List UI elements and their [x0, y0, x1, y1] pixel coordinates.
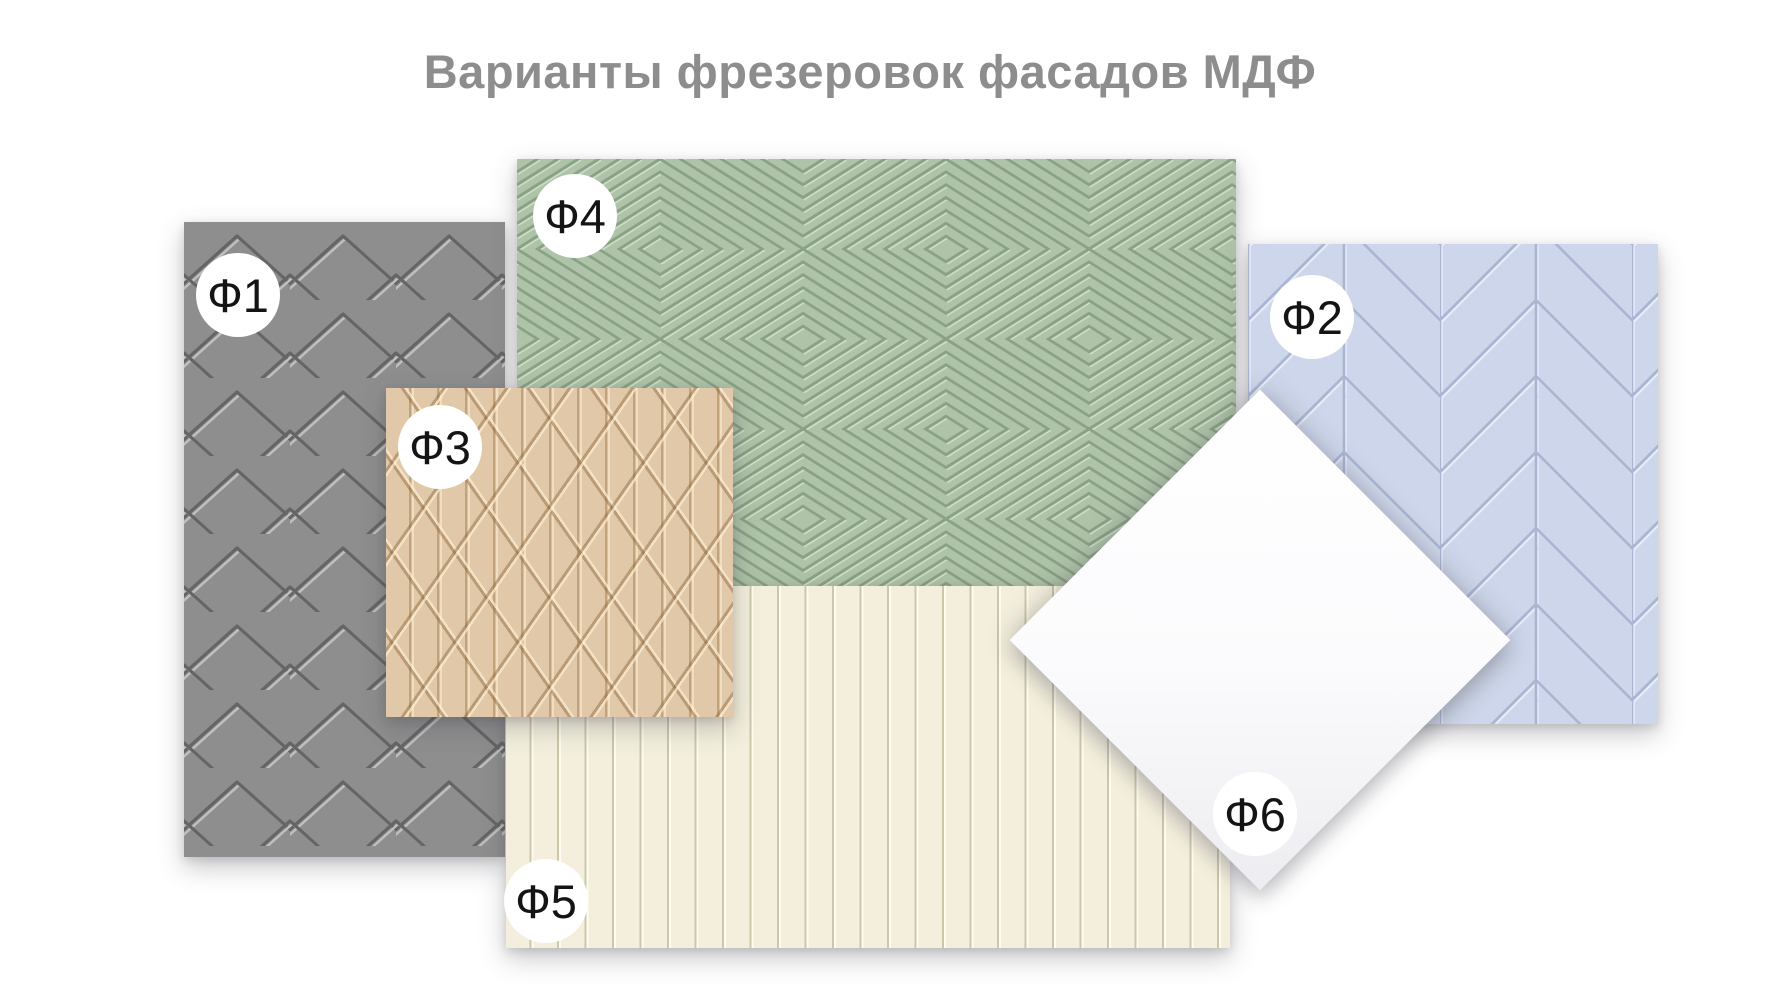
label-badge-f5: Ф5	[504, 859, 588, 943]
badge-f1-text: Ф1	[207, 268, 269, 323]
badge-f2-text: Ф2	[1281, 290, 1343, 345]
label-badge-f4: Ф4	[533, 174, 617, 258]
canvas: { "title": "Варианты фрезеровок фасадов …	[0, 0, 1778, 1000]
label-badge-f1: Ф1	[196, 253, 280, 337]
label-badge-f2: Ф2	[1270, 275, 1354, 359]
label-badge-f6: Ф6	[1213, 772, 1297, 856]
badge-f4-text: Ф4	[544, 189, 606, 244]
badge-f3-text: Ф3	[409, 420, 471, 475]
badge-f5-text: Ф5	[515, 874, 577, 929]
page-title: Варианты фрезеровок фасадов МДФ	[0, 44, 1740, 99]
badge-f6-text: Ф6	[1224, 787, 1286, 842]
label-badge-f3: Ф3	[398, 405, 482, 489]
